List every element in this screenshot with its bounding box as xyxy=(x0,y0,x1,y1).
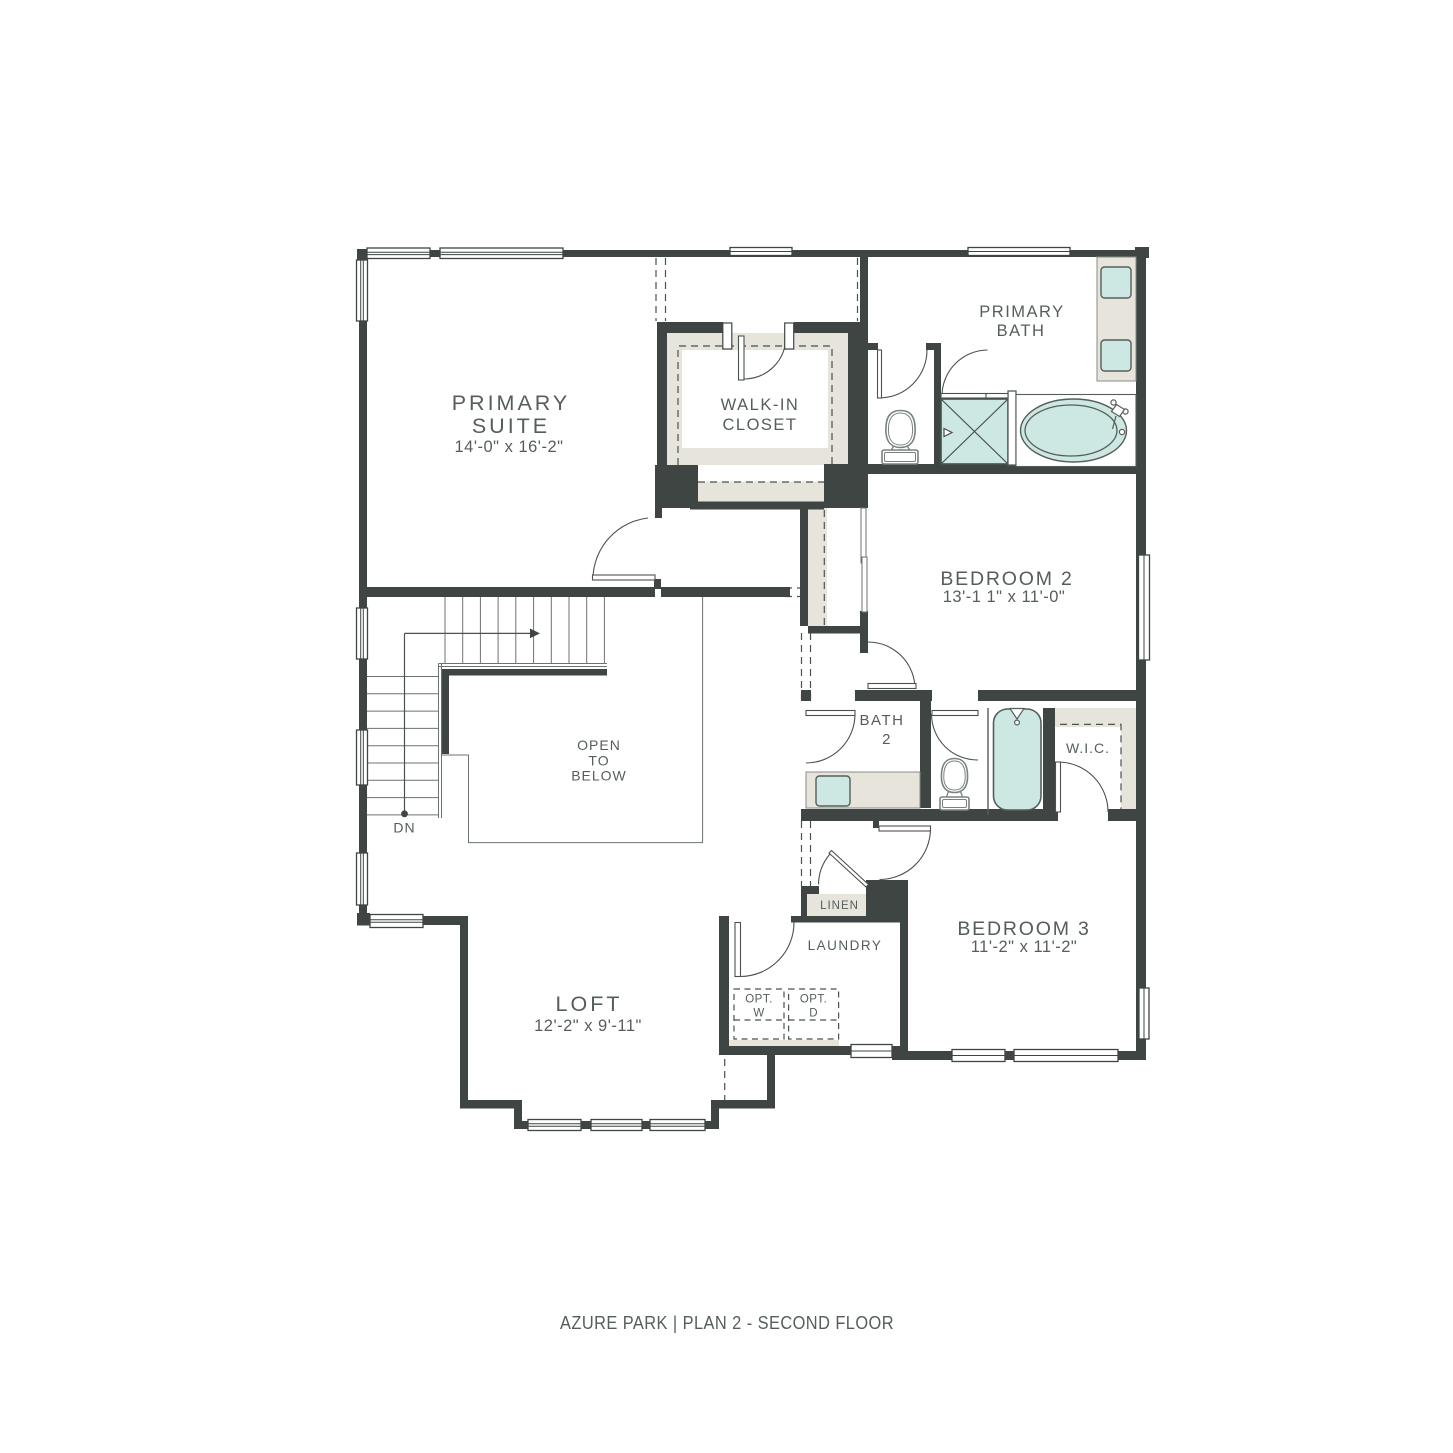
svg-text:13'-1 1" x 11'-0": 13'-1 1" x 11'-0" xyxy=(943,588,1066,606)
svg-text:PRIMARY: PRIMARY xyxy=(979,303,1064,321)
svg-text:PRIMARY: PRIMARY xyxy=(452,391,571,415)
svg-text:LOFT: LOFT xyxy=(556,992,623,1016)
svg-text:W: W xyxy=(753,1008,764,1020)
svg-text:SUITE: SUITE xyxy=(472,414,550,438)
svg-text:CLOSET: CLOSET xyxy=(722,416,797,434)
svg-text:BEDROOM 3: BEDROOM 3 xyxy=(957,918,1090,940)
svg-text:W.I.C.: W.I.C. xyxy=(1066,740,1110,756)
svg-text:TO: TO xyxy=(588,753,609,769)
svg-text:BEDROOM 2: BEDROOM 2 xyxy=(940,568,1073,590)
svg-text:WALK-IN: WALK-IN xyxy=(721,396,800,414)
svg-text:BATH: BATH xyxy=(997,322,1046,340)
svg-text:OPT.: OPT. xyxy=(745,994,773,1006)
svg-text:DN: DN xyxy=(393,820,415,836)
svg-text:14'-0" x 16'-2": 14'-0" x 16'-2" xyxy=(455,438,564,456)
svg-text:2: 2 xyxy=(882,731,892,748)
svg-text:OPT.: OPT. xyxy=(800,994,828,1006)
svg-text:D: D xyxy=(809,1008,818,1020)
svg-text:AZURE PARK | PLAN 2 - SECOND F: AZURE PARK | PLAN 2 - SECOND FLOOR xyxy=(560,1312,894,1333)
svg-text:LAUNDRY: LAUNDRY xyxy=(808,938,883,953)
svg-text:BELOW: BELOW xyxy=(571,768,627,784)
svg-text:BATH: BATH xyxy=(860,712,905,729)
svg-text:11'-2" x 11'-2": 11'-2" x 11'-2" xyxy=(971,938,1078,956)
svg-text:LINEN: LINEN xyxy=(820,900,859,912)
svg-text:OPEN: OPEN xyxy=(577,737,621,753)
svg-text:12'-2" x 9'-11": 12'-2" x 9'-11" xyxy=(534,1017,642,1035)
